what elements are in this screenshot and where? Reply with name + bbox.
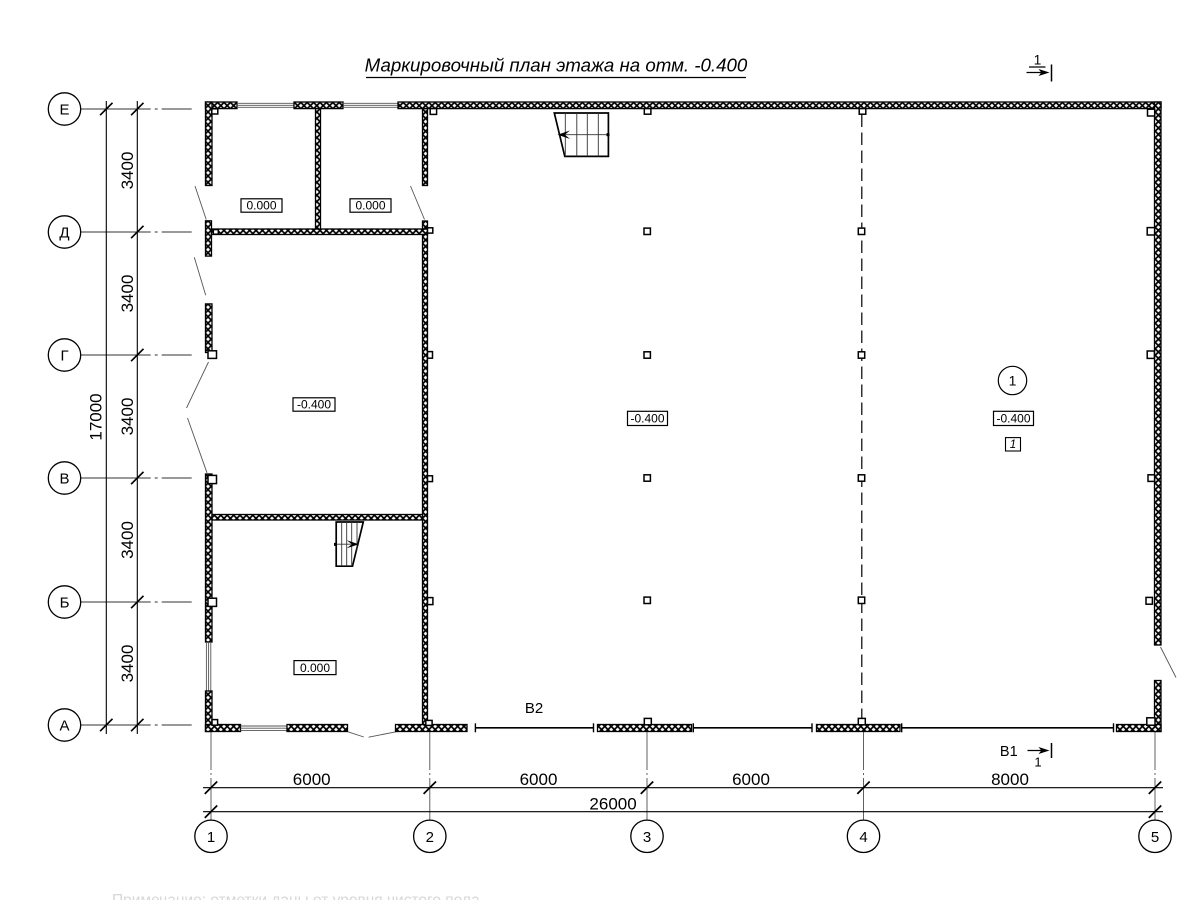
svg-text:5: 5: [1151, 829, 1159, 846]
svg-text:1: 1: [1034, 53, 1042, 68]
svg-text:3: 3: [643, 829, 651, 846]
svg-text:6000: 6000: [732, 770, 770, 789]
svg-text:3400: 3400: [118, 152, 137, 190]
svg-text:2: 2: [426, 829, 434, 846]
svg-text:3400: 3400: [118, 645, 137, 683]
svg-text:6000: 6000: [293, 770, 331, 789]
svg-text:6000: 6000: [520, 770, 558, 789]
svg-text:3400: 3400: [118, 275, 137, 313]
svg-text:А: А: [59, 717, 69, 734]
svg-text:1: 1: [1034, 755, 1041, 770]
svg-text:0.000: 0.000: [355, 199, 385, 213]
svg-text:В: В: [59, 470, 69, 487]
svg-text:1: 1: [1009, 373, 1017, 389]
svg-text:3400: 3400: [118, 398, 137, 436]
svg-text:1: 1: [207, 829, 215, 846]
svg-text:3400: 3400: [118, 521, 137, 559]
svg-text:4: 4: [859, 829, 867, 846]
svg-text:Маркировочный план этажа на от: Маркировочный план этажа на отм. -0.400: [365, 55, 748, 76]
svg-text:17000: 17000: [87, 393, 106, 440]
svg-text:В2: В2: [525, 700, 543, 717]
svg-text:Примечание: отметки даны от ур: Примечание: отметки даны от уровня чисто…: [112, 892, 480, 900]
svg-text:Б: Б: [60, 594, 70, 611]
svg-text:0.000: 0.000: [300, 661, 330, 675]
svg-text:-0.400: -0.400: [297, 398, 331, 412]
svg-text:-0.400: -0.400: [996, 412, 1030, 426]
svg-text:1: 1: [1010, 439, 1016, 451]
svg-text:-0.400: -0.400: [630, 412, 664, 426]
svg-text:Д: Д: [59, 224, 69, 241]
svg-text:Г: Г: [60, 347, 68, 364]
svg-text:0.000: 0.000: [246, 199, 276, 213]
svg-text:8000: 8000: [991, 770, 1029, 789]
svg-text:Е: Е: [59, 101, 69, 118]
svg-text:В1: В1: [1000, 744, 1018, 760]
svg-text:26000: 26000: [589, 795, 636, 814]
